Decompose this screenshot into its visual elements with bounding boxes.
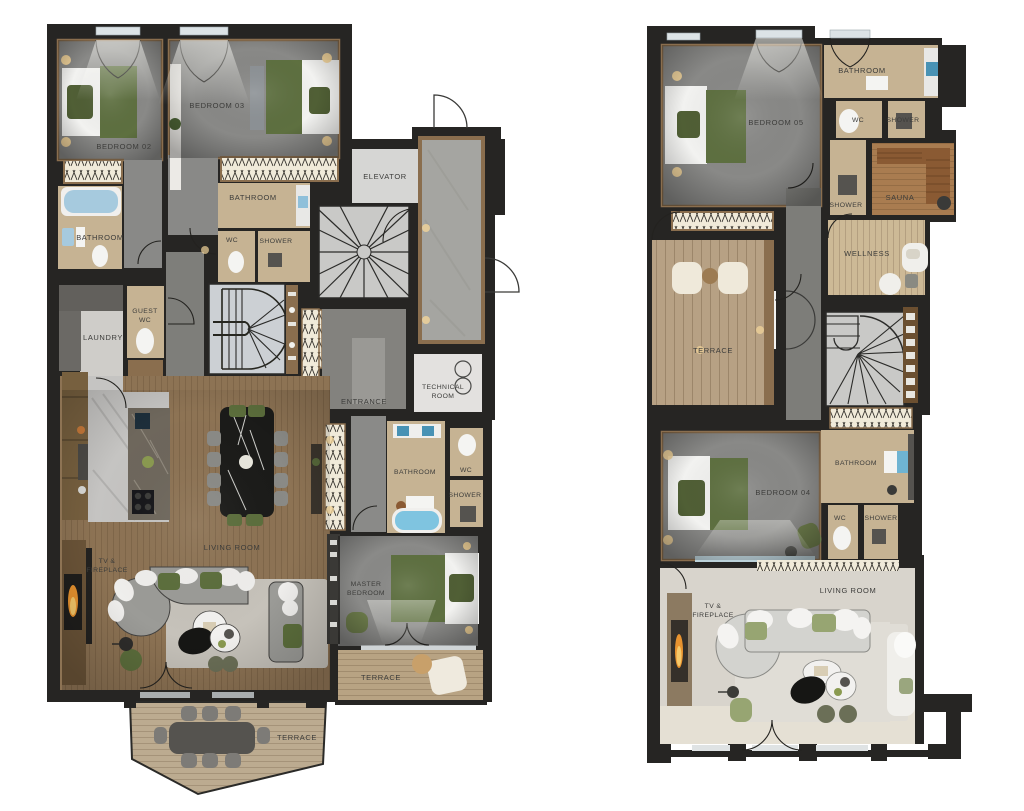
svg-text:ENTRANCE: ENTRANCE [341,397,387,406]
svg-text:BATHROOM: BATHROOM [838,66,886,75]
svg-text:WC: WC [852,117,864,124]
svg-text:TERRACE: TERRACE [693,346,733,355]
svg-text:BEDROOM 04: BEDROOM 04 [755,488,810,497]
svg-text:BATHROOM: BATHROOM [76,233,124,242]
svg-text:SAUNA: SAUNA [886,193,915,202]
svg-text:TECHNICAL: TECHNICAL [422,384,464,391]
svg-text:LIVING ROOM: LIVING ROOM [820,586,877,595]
svg-text:SHOWER: SHOWER [260,238,293,245]
svg-text:LAUNDRY: LAUNDRY [83,333,123,342]
svg-text:BEDROOM 05: BEDROOM 05 [748,118,803,127]
svg-text:BEDROOM 02: BEDROOM 02 [96,142,151,151]
svg-text:BATHROOM: BATHROOM [835,460,877,467]
svg-text:BEDROOM: BEDROOM [347,590,385,597]
svg-text:TERRACE: TERRACE [277,733,317,742]
svg-text:LIVING ROOM: LIVING ROOM [204,543,261,552]
svg-text:SHOWER: SHOWER [887,117,920,124]
svg-text:SHOWER: SHOWER [449,492,482,499]
svg-text:ELEVATOR: ELEVATOR [363,172,407,181]
svg-text:FIREPLACE: FIREPLACE [86,567,127,574]
svg-text:GUEST: GUEST [132,308,157,315]
svg-text:WC: WC [226,237,238,244]
svg-text:WC: WC [460,467,472,474]
svg-text:TV &: TV & [705,603,722,610]
svg-text:BATHROOM: BATHROOM [229,193,277,202]
svg-text:BEDROOM 03: BEDROOM 03 [189,101,244,110]
svg-text:WELLNESS: WELLNESS [844,249,890,258]
svg-text:BATHROOM: BATHROOM [394,469,436,476]
svg-text:ROOM: ROOM [432,393,455,400]
svg-text:SHOWER: SHOWER [830,202,863,209]
svg-text:TERRACE: TERRACE [361,673,401,682]
svg-text:WC: WC [834,515,846,522]
svg-text:SHOWER: SHOWER [865,515,898,522]
svg-text:FIREPLACE: FIREPLACE [692,612,733,619]
svg-text:WC: WC [139,317,151,324]
svg-text:TV &: TV & [99,558,116,565]
svg-text:MASTER: MASTER [351,581,382,588]
